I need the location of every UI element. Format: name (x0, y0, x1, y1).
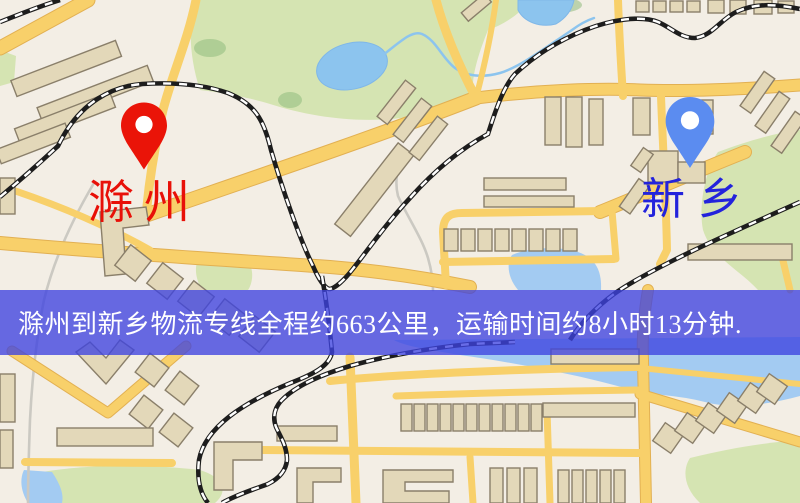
xinxiang-pin-icon (665, 97, 715, 168)
xinxiang-city-label: 新乡 (641, 178, 755, 222)
map-view: 滁州到新乡物流专线全程约663公里，运输时间约8小时13分钟. 滁州 新乡 (0, 0, 800, 503)
map-graphic (0, 0, 800, 503)
chuzhou-pin-icon (121, 101, 167, 171)
route-info-banner: 滁州到新乡物流专线全程约663公里，运输时间约8小时13分钟. (0, 290, 800, 355)
chuzhou-city-label: 滁州 (88, 180, 200, 226)
route-info-text: 滁州到新乡物流专线全程约663公里，运输时间约8小时13分钟. (18, 304, 742, 341)
